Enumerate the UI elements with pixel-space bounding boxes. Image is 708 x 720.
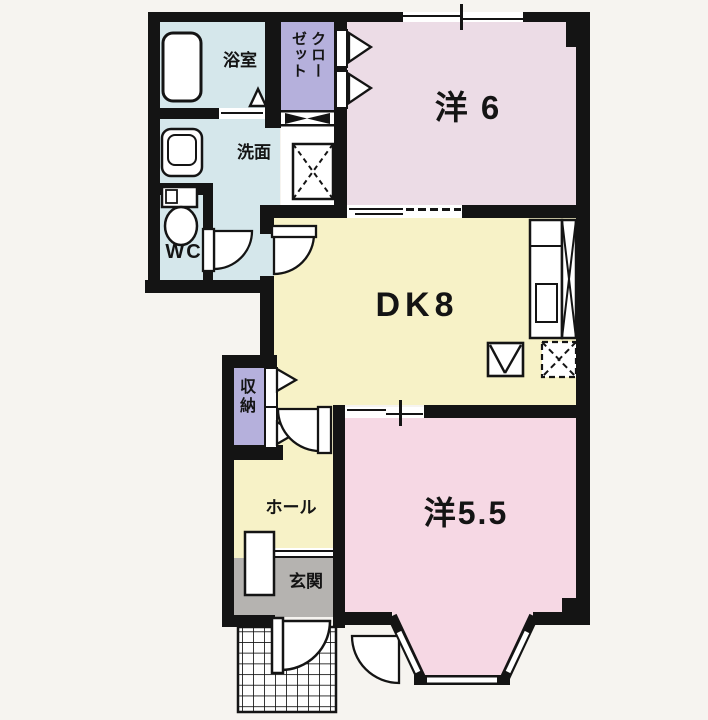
closet-label: クローゼット	[287, 31, 327, 89]
western-room-55-label: 洋5.5	[396, 496, 536, 531]
shoe-cabinet-icon	[245, 532, 274, 595]
toilet-icon	[162, 187, 197, 245]
dining-kitchen-label: DK8	[352, 287, 482, 324]
entrance-step	[274, 548, 333, 558]
wc-label: WC	[160, 241, 208, 263]
hall-label: ホール	[252, 499, 330, 518]
western-room-6-label: 洋 6	[408, 90, 528, 126]
washroom-label: 洗面	[226, 144, 282, 163]
refrigerator-space-icon	[542, 342, 576, 377]
bath-label: 浴室	[212, 52, 268, 71]
washing-machine-space-icon	[293, 144, 333, 199]
kitchen-sink-icon	[536, 284, 557, 322]
floor-plan-drawing	[0, 0, 708, 720]
storage-label: 収納	[236, 378, 255, 434]
floor-plan: 浴室 クローゼット 洋 6 洗面 WC DK8 収納 ホール 玄関 洋5.5	[0, 0, 708, 720]
kitchen-counter-icon	[530, 220, 576, 338]
stove-space-icon	[488, 343, 523, 376]
closet-divider-icon	[281, 110, 334, 127]
bathtub-icon	[163, 33, 201, 101]
entrance-label: 玄関	[278, 573, 334, 592]
room-opening	[347, 205, 462, 218]
washbasin-icon	[162, 129, 202, 176]
